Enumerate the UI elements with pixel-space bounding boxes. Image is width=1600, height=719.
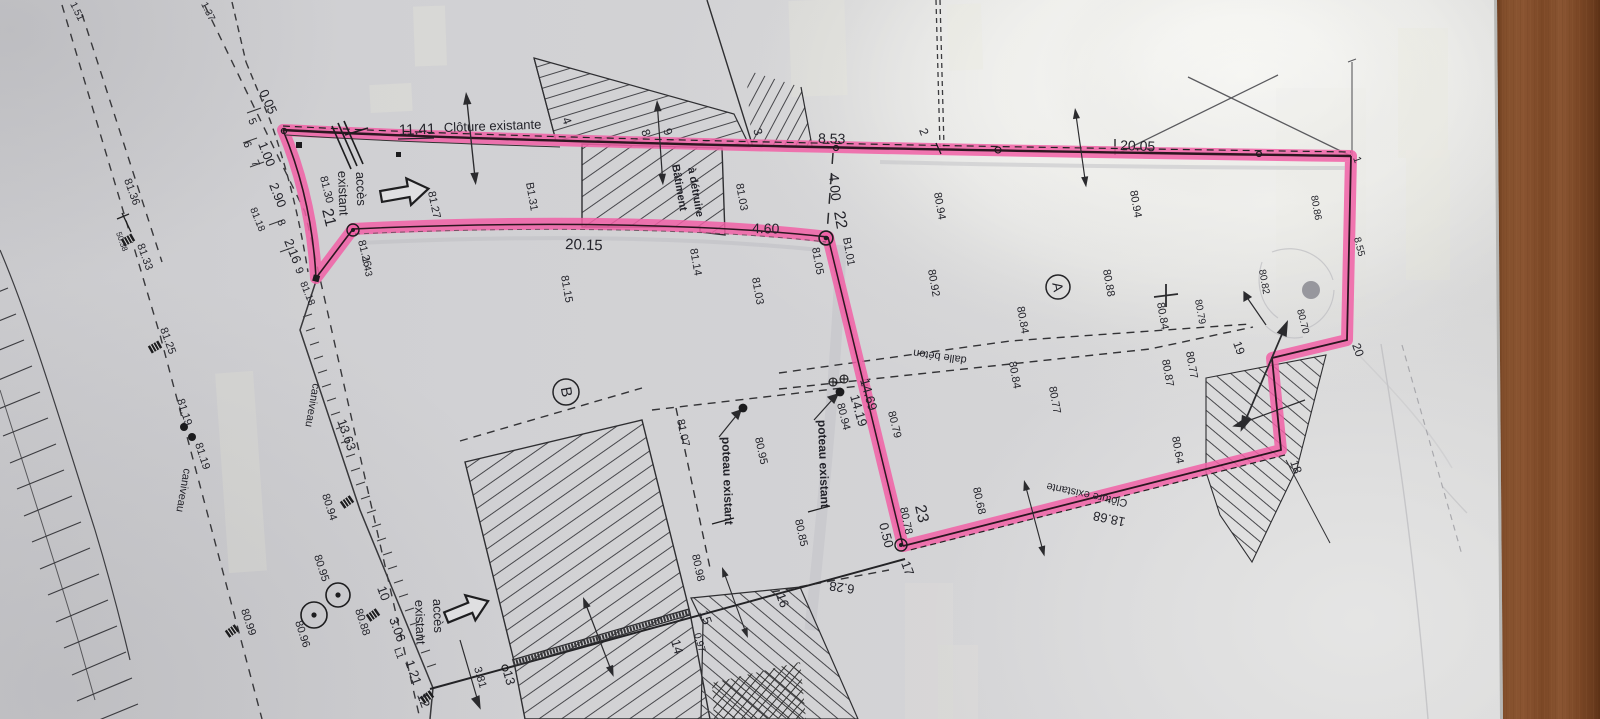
svg-text:22: 22: [830, 210, 850, 231]
svg-text:23: 23: [911, 503, 931, 524]
svg-text:accès: accès: [430, 599, 446, 634]
svg-text:4.60: 4.60: [752, 220, 780, 236]
svg-text:8.53: 8.53: [818, 130, 846, 146]
svg-text:accès: accès: [353, 172, 369, 207]
svg-text:existant: existant: [335, 171, 352, 217]
svg-text:11.41: 11.41: [399, 121, 436, 139]
svg-text:existant: existant: [412, 600, 429, 646]
svg-text:4.00: 4.00: [826, 173, 844, 202]
svg-text:20.15: 20.15: [565, 236, 603, 254]
svg-text:20.05: 20.05: [1120, 137, 1156, 154]
